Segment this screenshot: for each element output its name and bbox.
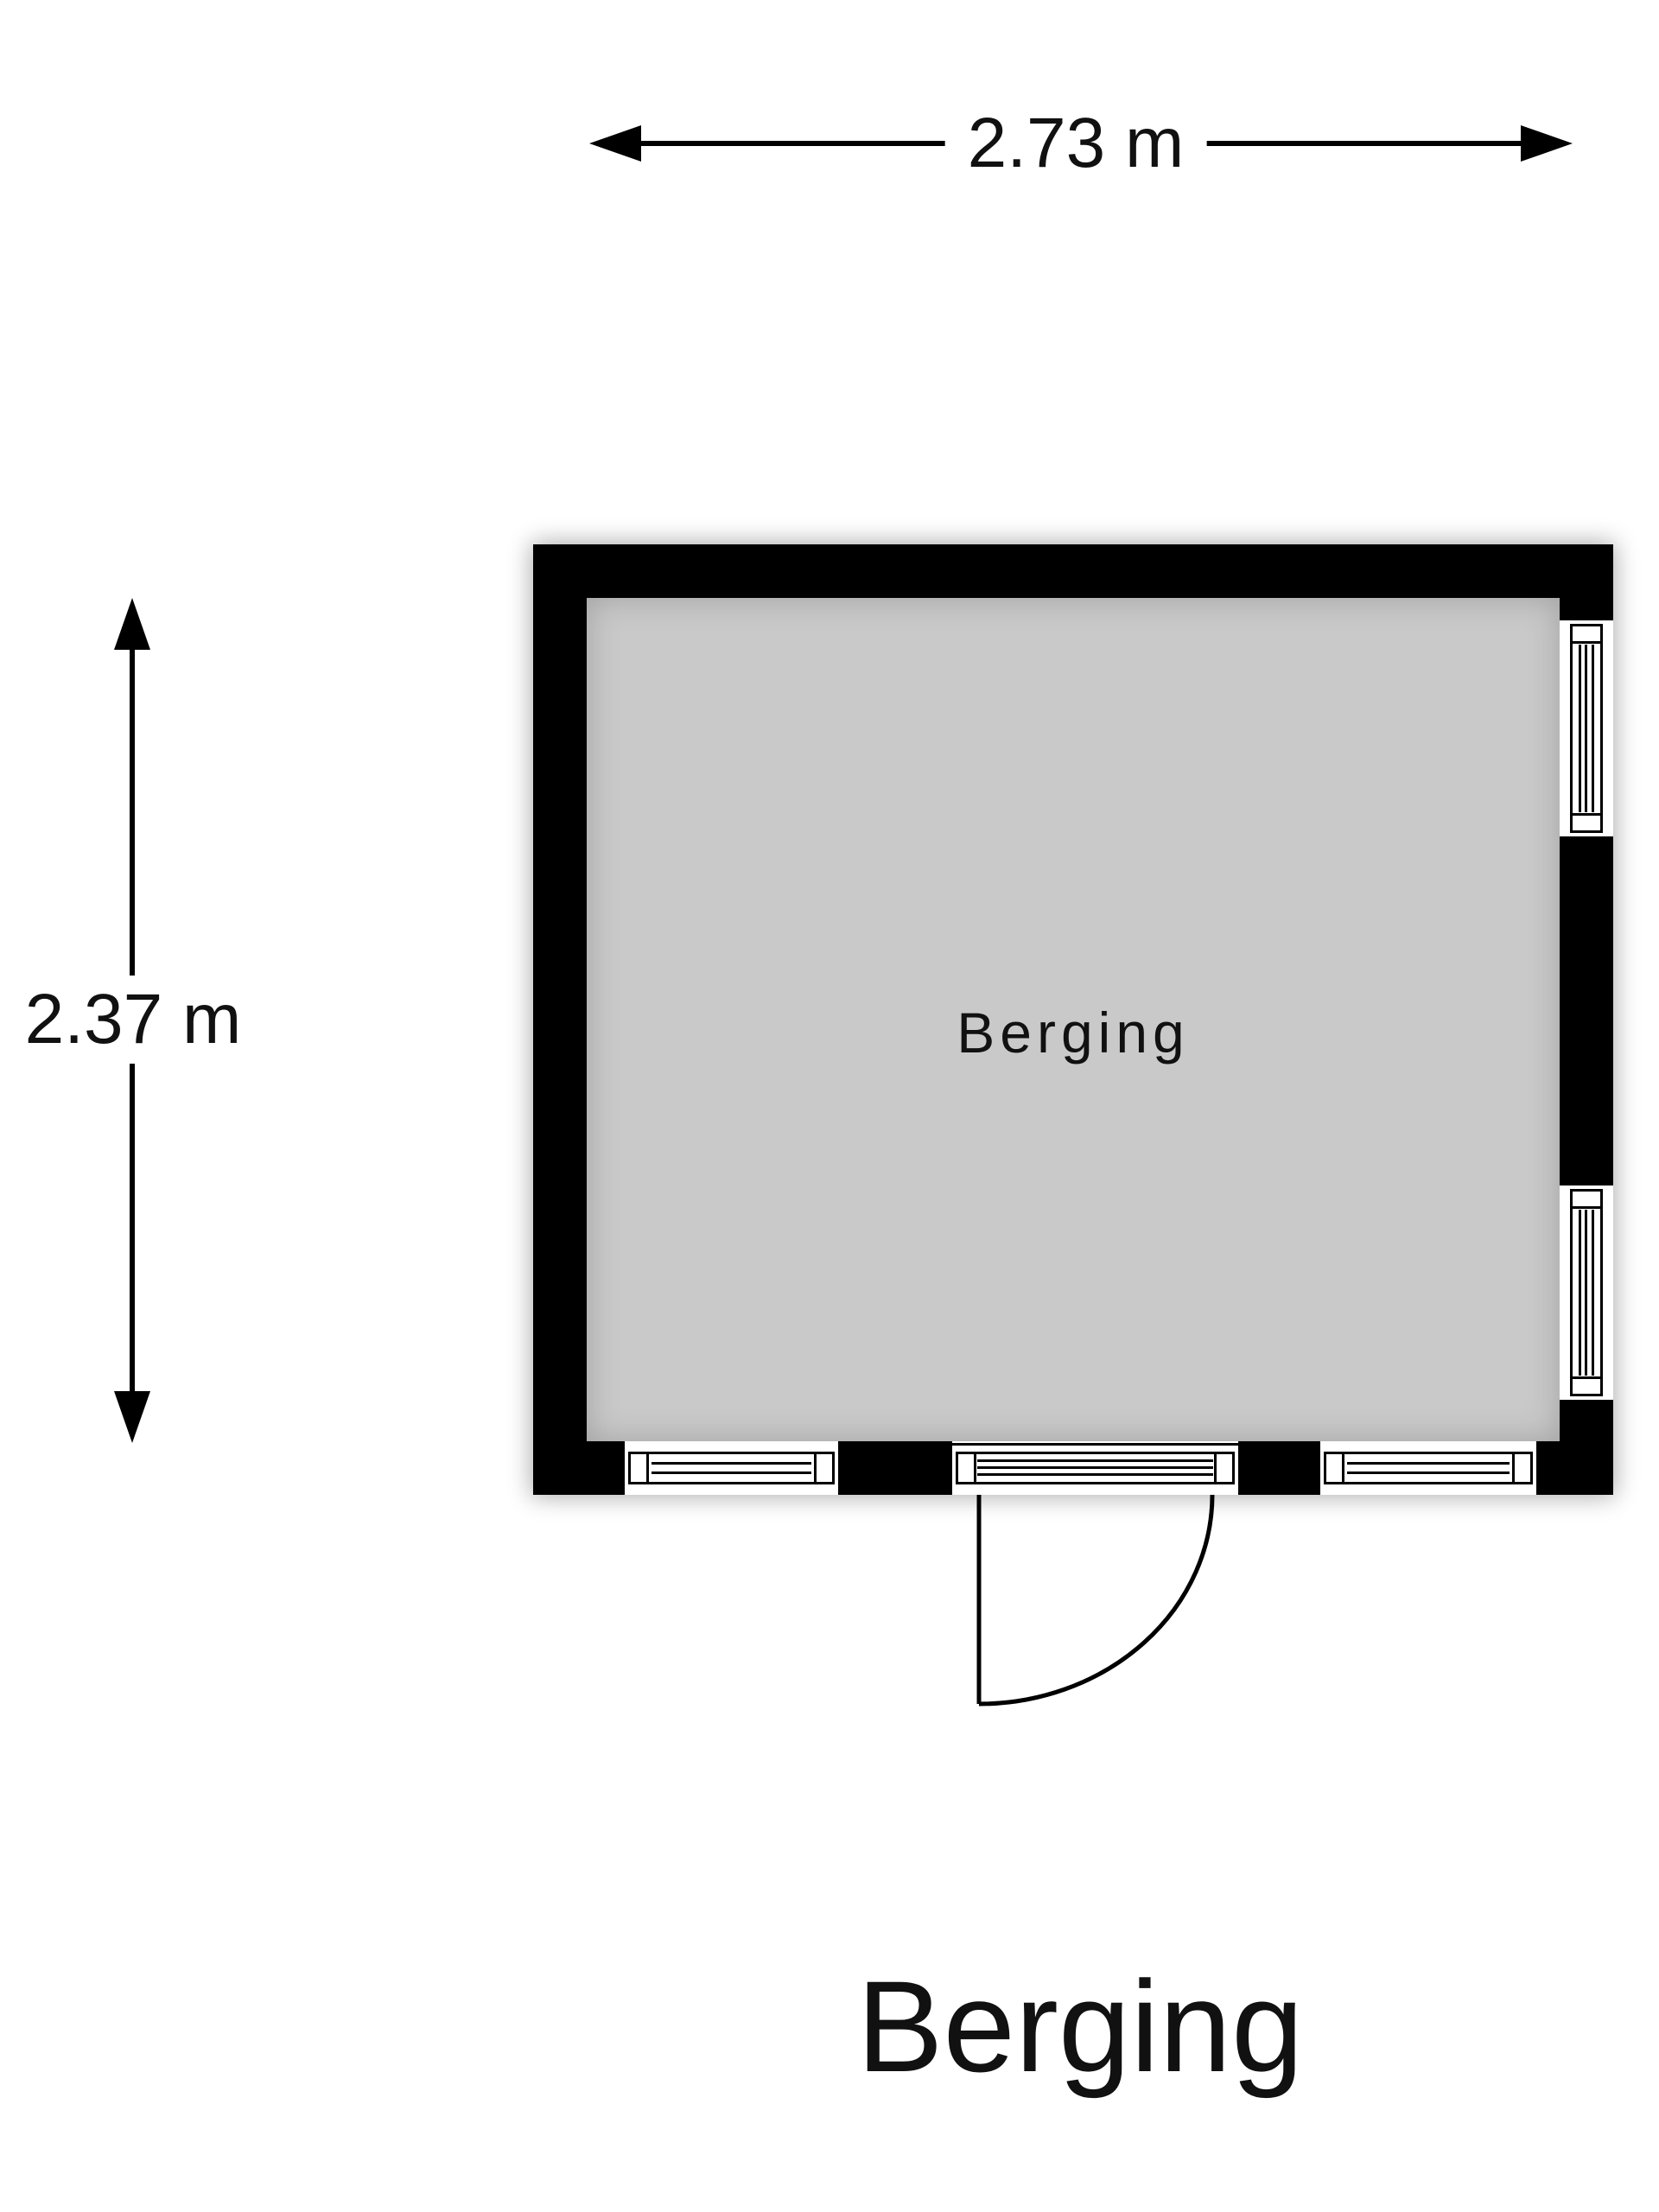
window-right-bottom-icon [1560,1185,1613,1400]
window-cap [1512,1452,1515,1484]
left-dimension-label: 2.37 m [3,976,264,1064]
arrow-down-icon [114,1391,150,1443]
window-pane-line [1592,1210,1594,1376]
window-frame [1324,1452,1533,1484]
window-pane-line [652,1471,811,1474]
window-cap [1570,1206,1603,1209]
arrow-left-icon [589,125,641,162]
window-cap [1570,813,1603,816]
top-dimension-label: 2.73 m [945,99,1207,188]
door-pane-line [977,1466,1213,1469]
room-label: Berging [957,978,1190,1061]
arrow-up-icon [114,598,150,650]
arrow-right-icon [1521,125,1573,162]
window-frame [628,1452,835,1484]
door-threshold-line [952,1443,1238,1446]
building-outline: Berging [533,544,1613,1495]
window-pane-line [652,1462,811,1465]
window-cap [646,1452,649,1484]
window-cap [1570,1376,1603,1379]
room-floor: Berging [587,598,1560,1441]
window-pane-line [1585,645,1587,812]
door-cap [1214,1452,1217,1484]
window-pane-line [1347,1462,1510,1465]
door-pane-line [977,1473,1213,1476]
window-pane-line [1347,1471,1510,1474]
door-pane-line [977,1459,1213,1462]
door-cap [974,1452,976,1484]
window-pane-line [1592,645,1594,812]
window-pane-line [1585,1210,1587,1376]
window-bottom-right-icon [1320,1441,1536,1495]
window-cap [814,1452,817,1484]
floorplan-title: Berging [856,1961,1303,2091]
window-bottom-left-icon [625,1441,838,1495]
window-pane-line [1579,1210,1581,1376]
window-cap [1342,1452,1344,1484]
floorplan-page: { "floorplan": { "room_label": "Berging"… [0,0,1659,2212]
window-right-top-icon [1560,620,1613,836]
door-opening [952,1441,1238,1495]
window-cap [1570,641,1603,644]
door-swing-arc-icon [979,1495,1212,1704]
window-pane-line [1579,645,1581,812]
